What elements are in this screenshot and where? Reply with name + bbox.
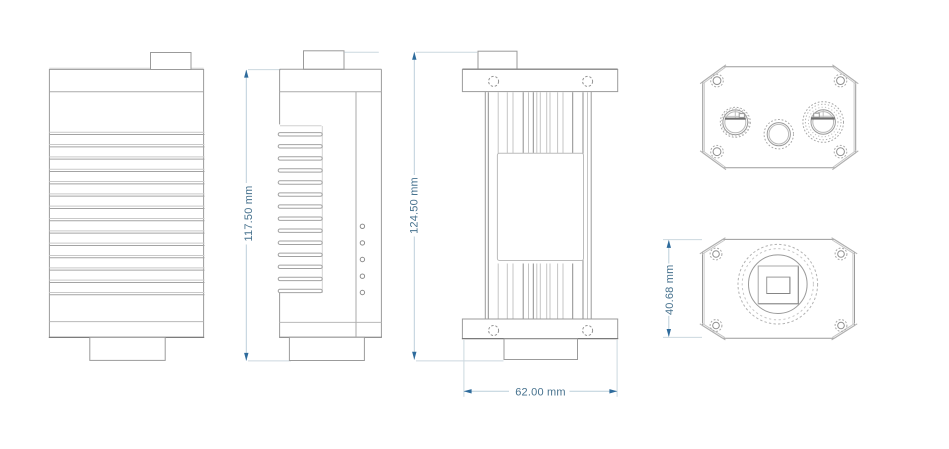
- svg-text:40.68 mm: 40.68 mm: [664, 265, 676, 316]
- svg-text:117.50 mm: 117.50 mm: [243, 185, 255, 241]
- svg-text:62.00 mm: 62.00 mm: [515, 386, 566, 398]
- svg-text:124.50 mm: 124.50 mm: [408, 177, 420, 234]
